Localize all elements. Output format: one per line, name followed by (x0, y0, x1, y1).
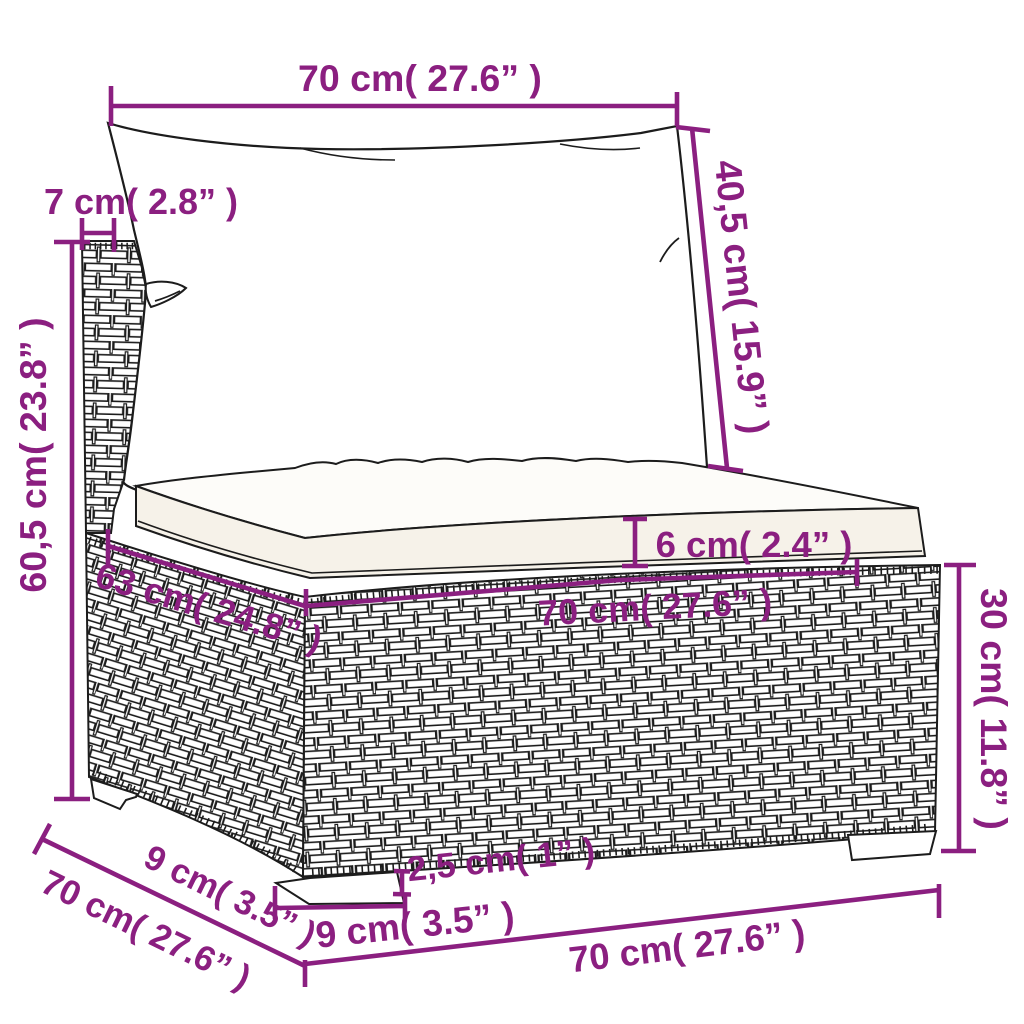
svg-text:7 cm( 2.8” ): 7 cm( 2.8” ) (44, 181, 238, 222)
svg-text:30 cm( 11.8” ): 30 cm( 11.8” ) (973, 588, 1015, 830)
svg-text:60,5 cm( 23.8” ): 60,5 cm( 23.8” ) (12, 317, 54, 592)
svg-text:6 cm( 2.4” ): 6 cm( 2.4” ) (656, 524, 853, 565)
svg-text:70 cm( 27.6” ): 70 cm( 27.6” ) (298, 57, 542, 99)
